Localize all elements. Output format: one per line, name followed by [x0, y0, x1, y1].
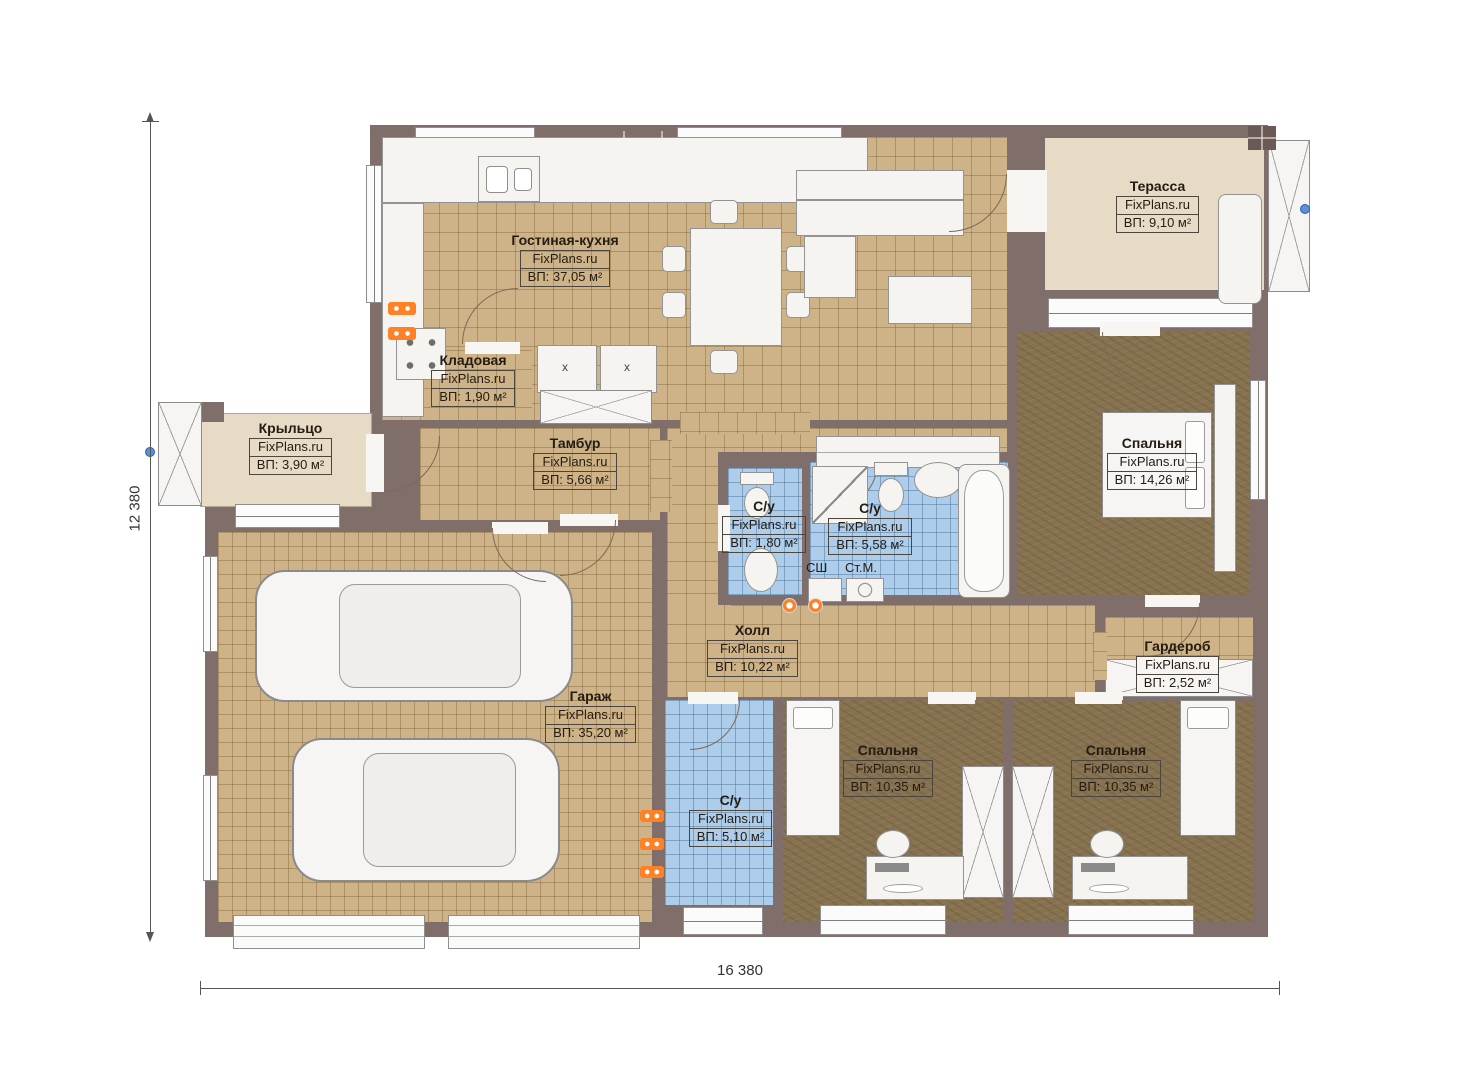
- garage-door: [233, 915, 425, 949]
- room-area: ВП: 2,52 м²: [1137, 675, 1218, 692]
- radiator: [640, 866, 664, 878]
- coffee-table: [888, 276, 972, 324]
- watermark: FixPlans.ru: [829, 519, 910, 537]
- room-name: Спальня: [1056, 742, 1176, 758]
- room-label-bathroom-2: С/у FixPlans.ru ВП: 5,58 м²: [815, 500, 925, 555]
- dining-table: [690, 228, 782, 346]
- watermark: FixPlans.ru: [1137, 657, 1218, 675]
- watermark: FixPlans.ru: [1072, 761, 1161, 779]
- room-area: ВП: 10,35 м²: [1072, 779, 1161, 796]
- washbasin: [914, 462, 962, 498]
- wardrobe-cabinet: [1012, 766, 1054, 898]
- room-label-bathroom-1: С/у FixPlans.ru ВП: 1,80 м²: [722, 498, 806, 553]
- watermark: FixPlans.ru: [844, 761, 933, 779]
- room-label-wardrobe: Гардероб FixPlans.ru ВП: 2,52 м²: [1105, 638, 1250, 693]
- dimension-label-vertical: 12 380: [127, 464, 144, 554]
- watermark: FixPlans.ru: [723, 517, 804, 535]
- cabinet-mark: x: [624, 360, 630, 374]
- room-area: ВП: 5,66 м²: [534, 472, 615, 489]
- pillow: [793, 707, 833, 729]
- window: [683, 907, 763, 935]
- room-name: Тамбур: [515, 435, 635, 451]
- dimension-arrow-up: [146, 112, 154, 122]
- room-label-bedroom-3: Спальня FixPlans.ru ВП: 10,35 м²: [1056, 742, 1176, 797]
- room-name: Гостиная-кухня: [470, 232, 660, 248]
- pillow: [1187, 707, 1229, 729]
- room-area: ВП: 10,35 м²: [844, 779, 933, 796]
- sink-basin: [486, 166, 508, 193]
- bed: [1180, 700, 1236, 836]
- desk-chair: [876, 830, 910, 858]
- desk: [866, 856, 964, 900]
- room-label-living-kitchen: Гостиная-кухня FixPlans.ru ВП: 37,05 м²: [470, 232, 660, 287]
- dining-chair: [710, 350, 738, 374]
- window: [1250, 380, 1266, 500]
- room-name: С/у: [815, 500, 925, 516]
- room-name: Крыльцо: [228, 420, 353, 436]
- radiator: [640, 838, 664, 850]
- window: [235, 504, 340, 528]
- keyboard-icon: [1089, 884, 1129, 893]
- watermark: FixPlans.ru: [1117, 197, 1198, 215]
- room-name: Спальня: [828, 742, 948, 758]
- washing-machine: [846, 578, 884, 602]
- dimension-label-horizontal: 16 380: [695, 962, 785, 979]
- vent-shaft-icon: [644, 131, 680, 161]
- car: [292, 738, 560, 882]
- room-name: Кладовая: [408, 352, 538, 368]
- room-area: ВП: 5,10 м²: [690, 829, 771, 846]
- room-area: ВП: 10,22 м²: [708, 659, 797, 676]
- room-label-garage: Гараж FixPlans.ru ВП: 35,20 м²: [528, 688, 653, 743]
- room-name: Гараж: [528, 688, 653, 704]
- floor-plan: x x: [0, 0, 1474, 1080]
- watermark: FixPlans.ru: [546, 707, 635, 725]
- handle-dot: [1300, 204, 1310, 214]
- room-area: ВП: 1,80 м²: [723, 535, 804, 552]
- room-label-bedroom-main: Спальня FixPlans.ru ВП: 14,26 м²: [1092, 435, 1212, 490]
- car-cabin: [339, 584, 521, 689]
- radiator: [388, 327, 416, 340]
- washing-machine-label: Ст.М.: [845, 560, 877, 575]
- radiator: [808, 598, 823, 613]
- cabinet-mark: x: [562, 360, 568, 374]
- room-area: ВП: 9,10 м²: [1117, 215, 1198, 232]
- window: [366, 165, 382, 303]
- stairs-porch: [158, 402, 202, 506]
- watermark: FixPlans.ru: [690, 811, 771, 829]
- watermark: FixPlans.ru: [521, 251, 610, 269]
- room-name: Спальня: [1092, 435, 1212, 451]
- stairs-terrace: [1268, 140, 1310, 292]
- watermark: FixPlans.ru: [534, 454, 615, 472]
- toilet-tank: [740, 472, 774, 485]
- dining-chair: [662, 246, 686, 272]
- room-label-vestibule: Тамбур FixPlans.ru ВП: 5,66 м²: [515, 435, 635, 490]
- car: [255, 570, 573, 702]
- car-cabin: [363, 753, 516, 868]
- closet: [540, 390, 652, 424]
- bathtub: [958, 464, 1010, 598]
- room-name: Гардероб: [1105, 638, 1250, 654]
- room-area: ВП: 3,90 м²: [250, 457, 331, 474]
- wardrobe-cabinet: [962, 766, 1004, 898]
- room-label-hall: Холл FixPlans.ru ВП: 10,22 м²: [695, 622, 810, 677]
- wall-stub-porch: [202, 402, 224, 422]
- room-name: С/у: [678, 792, 783, 808]
- desk: [1072, 856, 1188, 900]
- vent-shaft-icon: [606, 131, 642, 161]
- room-area: ВП: 14,26 м²: [1108, 472, 1197, 489]
- desk-chair: [1090, 830, 1124, 858]
- watermark: FixPlans.ru: [432, 371, 513, 389]
- dimension-line-vertical: [150, 122, 151, 940]
- room-label-porch: Крыльцо FixPlans.ru ВП: 3,90 м²: [228, 420, 353, 475]
- computer-icon: [1081, 863, 1115, 872]
- window: [820, 905, 946, 935]
- toilet-tank: [874, 462, 908, 476]
- radiator: [640, 810, 664, 822]
- room-area: ВП: 1,90 м²: [432, 389, 513, 406]
- watermark: FixPlans.ru: [708, 641, 797, 659]
- room-label-bedroom-2: Спальня FixPlans.ru ВП: 10,35 м²: [828, 742, 948, 797]
- chimney: [1248, 126, 1276, 150]
- floor-opening-living-corridor: [680, 412, 810, 434]
- room-area: ВП: 35,20 м²: [546, 725, 635, 742]
- garage-door: [448, 915, 640, 949]
- door-opening-entrance: [366, 434, 384, 492]
- window: [203, 775, 218, 881]
- sofa-back: [796, 170, 964, 200]
- dining-chair: [662, 292, 686, 318]
- radiator: [782, 598, 797, 613]
- room-area: ВП: 5,58 м²: [829, 537, 910, 554]
- dining-chair: [710, 200, 738, 224]
- sofa-seat: [796, 200, 964, 236]
- window: [1068, 905, 1194, 935]
- washbasin: [744, 548, 778, 592]
- door-opening-terrace: [1007, 170, 1047, 232]
- watermark: FixPlans.ru: [1108, 454, 1197, 472]
- dimension-arrow-down: [146, 932, 154, 942]
- keyboard-icon: [883, 884, 923, 893]
- bathtub-basin: [964, 470, 1004, 592]
- dimension-tick: [1279, 981, 1280, 995]
- dimension-tick: [200, 981, 201, 995]
- room-name: Терасса: [1075, 178, 1240, 194]
- room-label-terrace: Терасса FixPlans.ru ВП: 9,10 м²: [1075, 178, 1240, 233]
- dimension-line-horizontal: [200, 988, 1280, 989]
- drying-cabinet-label: СШ: [806, 560, 827, 575]
- sink-basin: [514, 168, 532, 191]
- window: [203, 556, 218, 652]
- computer-icon: [875, 863, 909, 872]
- sofa-chaise: [804, 236, 856, 298]
- room-name: С/у: [722, 498, 806, 514]
- floor-opening-vestibule-corridor: [650, 440, 672, 512]
- room-label-bathroom-3: С/у FixPlans.ru ВП: 5,10 м²: [678, 792, 783, 847]
- room-label-storage: Кладовая FixPlans.ru ВП: 1,90 м²: [408, 352, 538, 407]
- room-name: Холл: [695, 622, 810, 638]
- watermark: FixPlans.ru: [250, 439, 331, 457]
- kitchen-sink: [478, 156, 540, 202]
- room-area: ВП: 37,05 м²: [521, 269, 610, 286]
- radiator: [388, 302, 416, 315]
- nightstand: [1214, 384, 1236, 572]
